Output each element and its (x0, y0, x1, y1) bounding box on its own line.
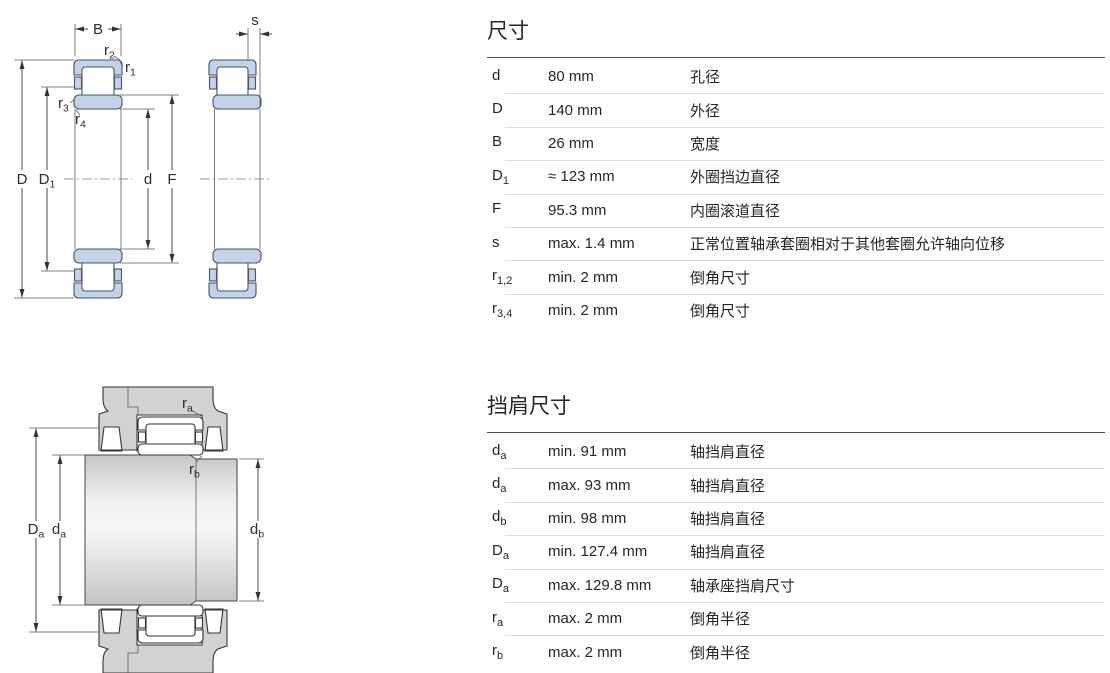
dim-symbol: r1,2 (487, 267, 548, 287)
dim-description: 外径 (690, 100, 1105, 121)
dim-description: 宽度 (690, 133, 1105, 154)
dim-description: 倒角半径 (690, 608, 1105, 629)
label-r3: r3 (58, 95, 75, 115)
dim-description: 轴挡肩直径 (690, 475, 1105, 496)
dim-value: max. 2 mm (548, 644, 690, 661)
title-rule (487, 432, 1105, 433)
bearing-mounting-drawing: Da da db ra rb (5, 382, 335, 673)
dim-value: min. 127.4 mm (548, 543, 690, 560)
dimensions-rows: d 80 mm 孔径 D 140 mm 外径 B 26 mm 宽度 D1 ≈ 1… (487, 60, 1105, 327)
spec-row: rb max. 2 mm 倒角半径 (487, 635, 1105, 668)
dim-value: min. 2 mm (548, 302, 690, 319)
dim-value: min. 98 mm (548, 510, 690, 527)
svg-text:F: F (167, 171, 176, 188)
spec-row: db min. 98 mm 轴挡肩直径 (487, 502, 1105, 535)
abutment-section: 挡肩尺寸 da min. 91 mm 轴挡肩直径 da max. 93 mm 轴… (487, 393, 1105, 669)
dim-value: max. 93 mm (548, 477, 690, 494)
dim-symbol: ra (487, 609, 548, 629)
dimensions-title: 尺寸 (487, 18, 1105, 46)
dim-value: min. 2 mm (548, 269, 690, 286)
dimensions-section: 尺寸 d 80 mm 孔径 D 140 mm 外径 B 26 mm 宽度 D1 … (487, 18, 1105, 327)
svg-text:r4: r4 (75, 111, 86, 131)
dim-symbol: r3,4 (487, 300, 548, 320)
title-rule (487, 57, 1105, 58)
dim-value: 140 mm (548, 102, 690, 119)
left-view-bearing-half (74, 60, 122, 109)
spec-row: da max. 93 mm 轴挡肩直径 (487, 468, 1105, 501)
dim-value: 80 mm (548, 68, 690, 85)
dim-description: 轴挡肩直径 (690, 541, 1105, 562)
label-r4: r4 (75, 110, 86, 131)
dim-value: 95.3 mm (548, 202, 690, 219)
dim-value: 26 mm (548, 135, 690, 152)
spec-row: F 95.3 mm 内圈滚道直径 (487, 194, 1105, 227)
bearing-section-half (138, 417, 203, 455)
svg-text:s: s (251, 12, 259, 29)
abutment-rows: da min. 91 mm 轴挡肩直径 da max. 93 mm 轴挡肩直径 … (487, 435, 1105, 669)
spec-row: r3,4 min. 2 mm 倒角尺寸 (487, 294, 1105, 327)
dim-db: db (239, 459, 267, 601)
dim-symbol: da (487, 475, 548, 495)
label-r2: r2 (104, 42, 120, 62)
bearing-cross-section-drawing: B s D D1 (8, 10, 338, 322)
right-view-bearing-half (209, 60, 261, 109)
svg-text:d: d (144, 171, 152, 188)
dim-symbol: da (487, 442, 548, 462)
dim-symbol: Da (487, 575, 548, 595)
dim-description: 轴承座挡肩尺寸 (690, 575, 1105, 596)
svg-text:r1: r1 (125, 59, 136, 79)
dim-description: 轴挡肩直径 (690, 441, 1105, 462)
spec-row: Da min. 127.4 mm 轴挡肩直径 (487, 535, 1105, 568)
dim-description: 倒角半径 (690, 642, 1105, 663)
dim-symbol: rb (487, 642, 548, 662)
spec-row: d 80 mm 孔径 (487, 60, 1105, 93)
dim-value: max. 129.8 mm (548, 577, 690, 594)
dim-symbol: D1 (487, 167, 548, 187)
spec-row: B 26 mm 宽度 (487, 127, 1105, 160)
dim-description: 倒角尺寸 (690, 300, 1105, 321)
dim-value: ≈ 123 mm (548, 168, 690, 185)
dim-description: 轴挡肩直径 (690, 508, 1105, 529)
spec-row: s max. 1.4 mm 正常位置轴承套圈相对于其他套圈允许轴向位移 (487, 227, 1105, 260)
svg-text:D: D (17, 171, 28, 188)
dim-value: max. 1.4 mm (548, 235, 690, 252)
dim-description: 外圈挡边直径 (690, 166, 1105, 187)
spec-row: D 140 mm 外径 (487, 93, 1105, 126)
spec-row: Da max. 129.8 mm 轴承座挡肩尺寸 (487, 569, 1105, 602)
spec-row: r1,2 min. 2 mm 倒角尺寸 (487, 260, 1105, 293)
dim-symbol: F (487, 200, 548, 220)
dim-description: 内圈滚道直径 (690, 200, 1105, 221)
shaft-section (85, 455, 237, 605)
spec-row: D1 ≈ 123 mm 外圈挡边直径 (487, 160, 1105, 193)
dim-value: min. 91 mm (548, 443, 690, 460)
svg-text:r3: r3 (58, 95, 69, 115)
svg-text:r2: r2 (104, 42, 115, 62)
dim-da: da (51, 455, 85, 605)
svg-text:B: B (93, 21, 103, 38)
dim-symbol: s (487, 234, 548, 254)
dim-symbol: D (487, 100, 548, 120)
dim-symbol: B (487, 133, 548, 153)
dim-symbol: Da (487, 542, 548, 562)
dim-symbol: d (487, 67, 548, 87)
dim-value: max. 2 mm (548, 610, 690, 627)
spec-row: ra max. 2 mm 倒角半径 (487, 602, 1105, 635)
spec-row: da min. 91 mm 轴挡肩直径 (487, 435, 1105, 468)
dim-description: 倒角尺寸 (690, 267, 1105, 288)
dim-description: 正常位置轴承套圈相对于其他套圈允许轴向位移 (690, 233, 1105, 254)
dim-description: 孔径 (690, 66, 1105, 87)
abutment-title: 挡肩尺寸 (487, 393, 1105, 421)
dim-symbol: db (487, 508, 548, 528)
product-spec-page: B s D D1 (0, 0, 1110, 673)
